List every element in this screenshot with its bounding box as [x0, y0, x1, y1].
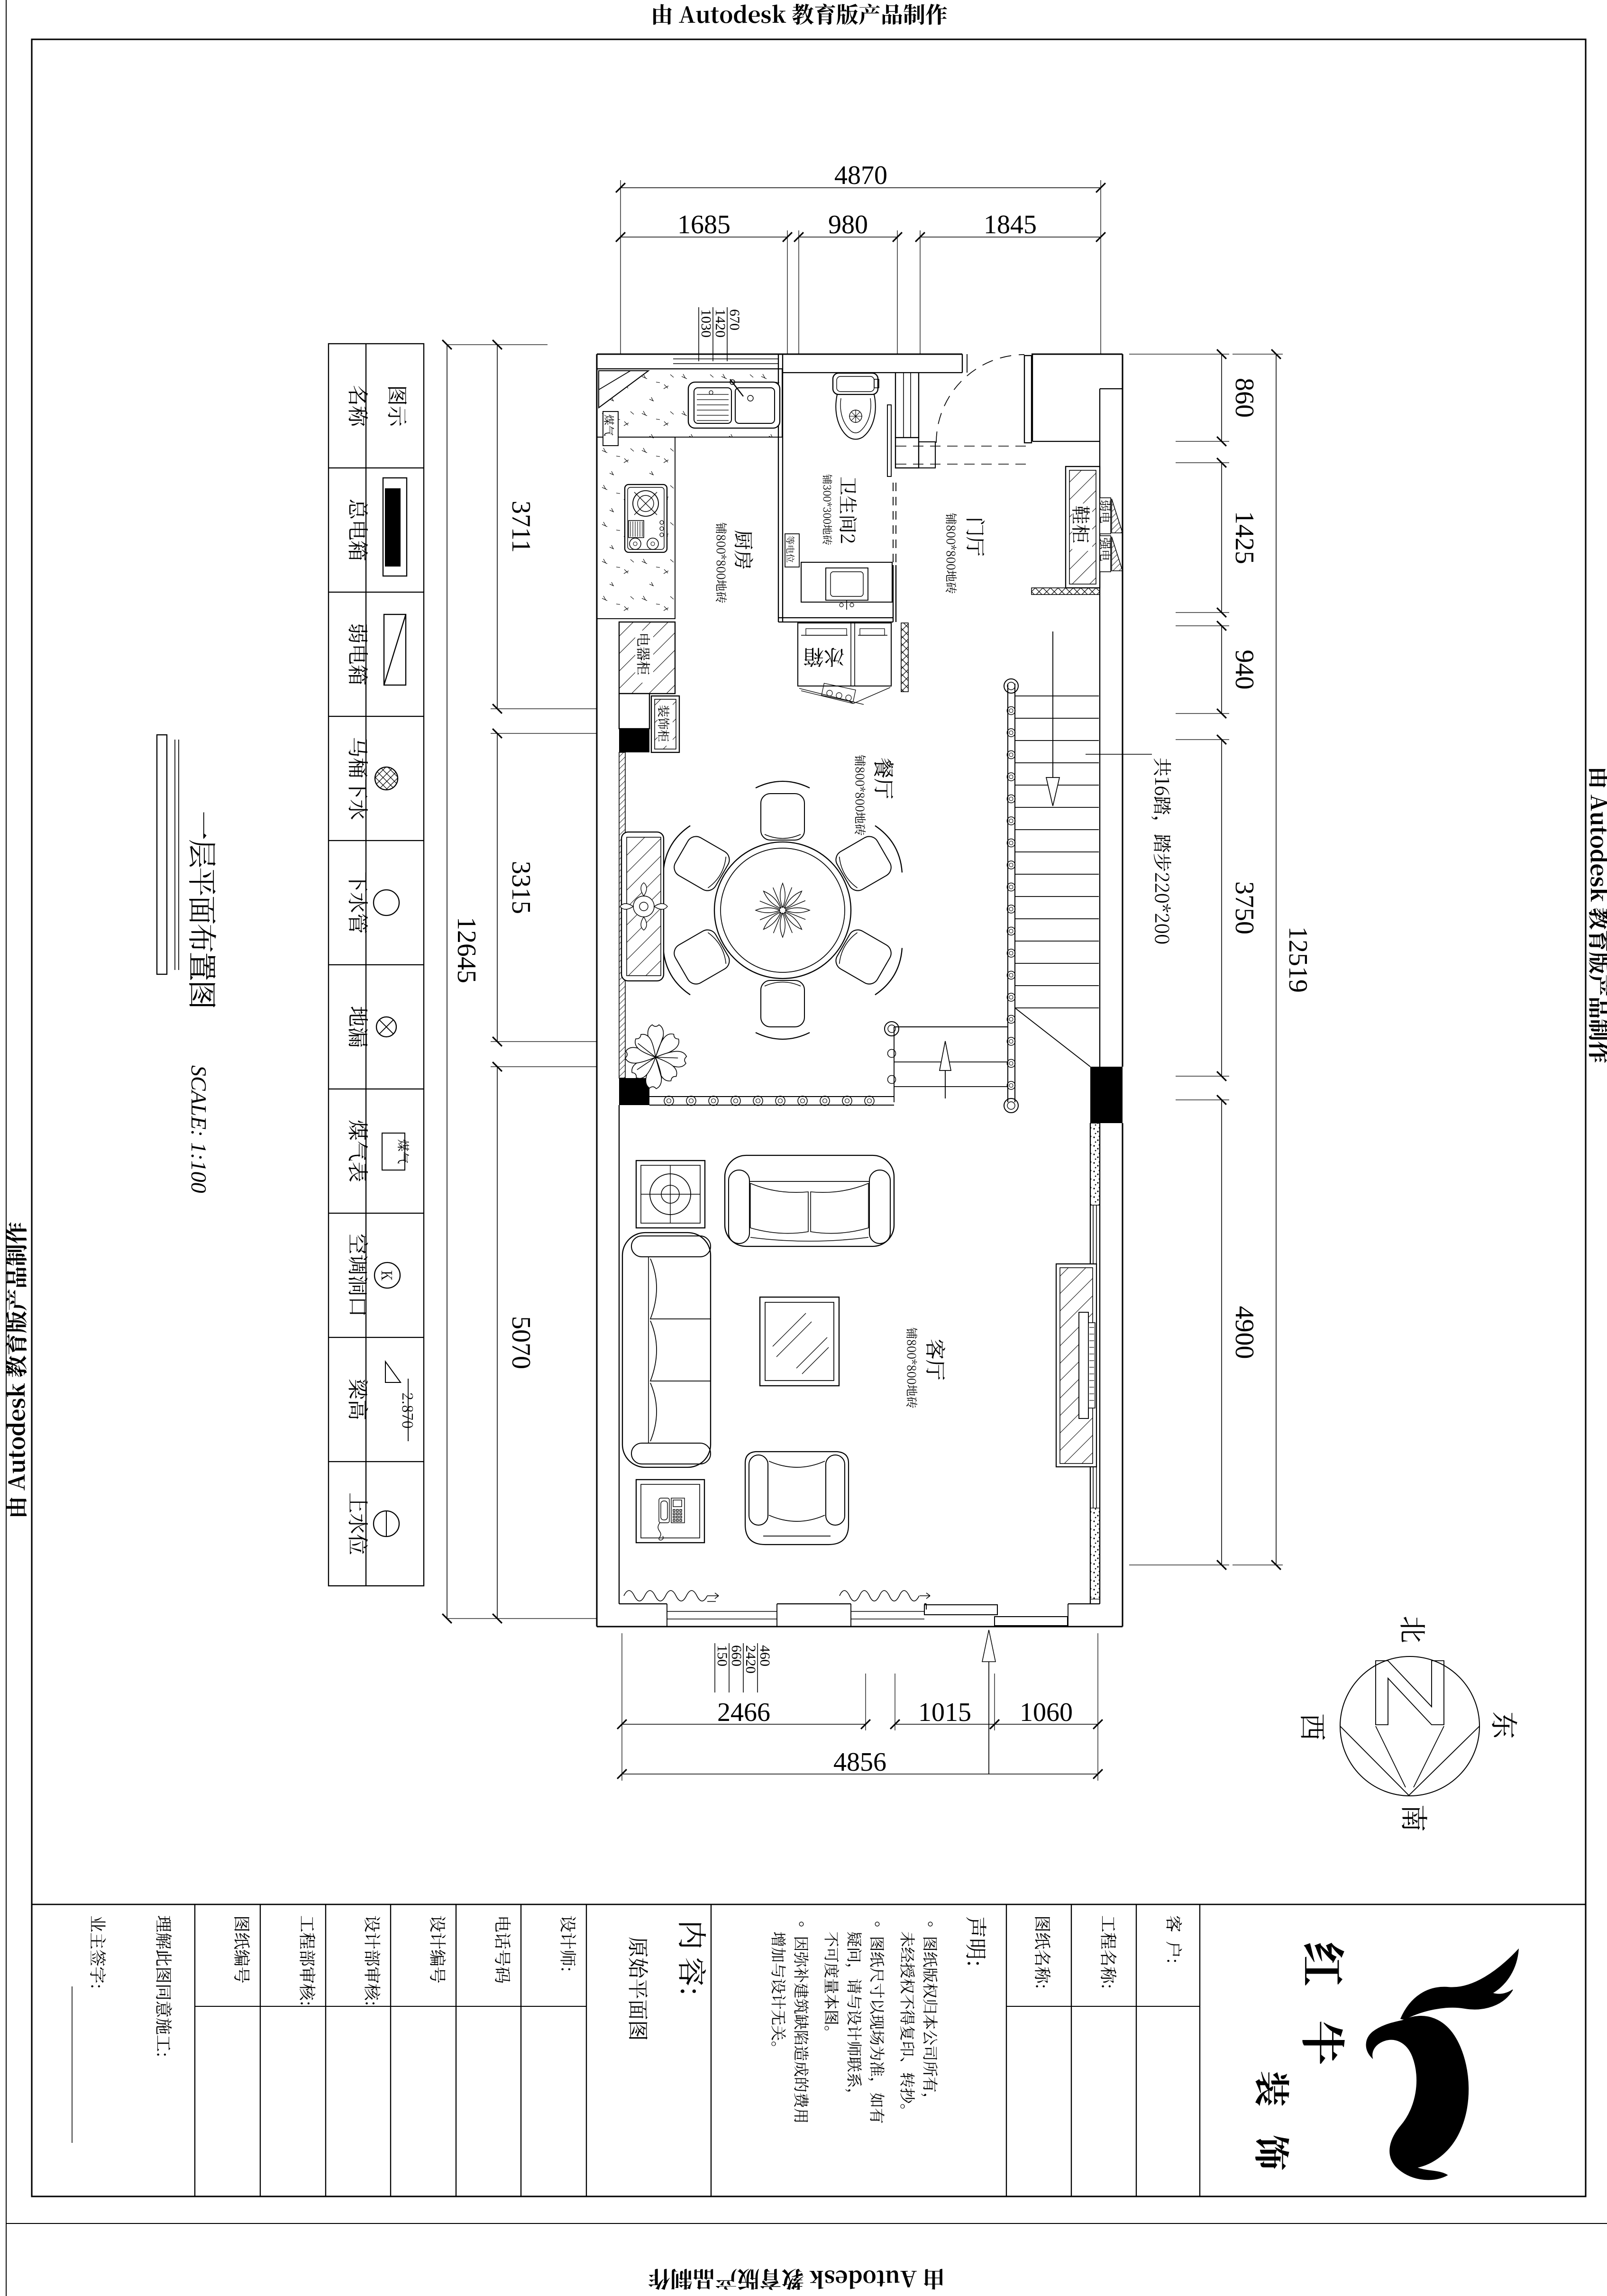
svg-text:460: 460	[757, 1645, 773, 1666]
svg-text:1420: 1420	[712, 309, 728, 338]
svg-text:4856: 4856	[833, 1747, 886, 1777]
svg-text:5070: 5070	[506, 1316, 536, 1369]
svg-text:660: 660	[729, 1645, 744, 1666]
svg-text:1425: 1425	[1230, 511, 1259, 564]
svg-text:670: 670	[727, 309, 742, 330]
svg-text:1015: 1015	[918, 1698, 971, 1727]
svg-text:2420: 2420	[743, 1645, 758, 1674]
svg-text:4900: 4900	[1230, 1306, 1259, 1359]
svg-text:1685: 1685	[677, 210, 730, 239]
svg-text:12645: 12645	[452, 917, 481, 983]
svg-text:1060: 1060	[1020, 1698, 1073, 1727]
svg-text:3315: 3315	[506, 861, 536, 914]
svg-text:3711: 3711	[506, 501, 536, 553]
svg-text:1030: 1030	[698, 309, 714, 338]
svg-text:12519: 12519	[1283, 926, 1313, 993]
svg-text:3750: 3750	[1230, 881, 1259, 934]
svg-text:1845: 1845	[984, 210, 1037, 239]
svg-text:2466: 2466	[717, 1698, 770, 1727]
svg-text:SCALE: 1:100: SCALE: 1:100	[187, 1065, 211, 1193]
svg-text:940: 940	[1230, 650, 1259, 690]
svg-text:150: 150	[714, 1645, 730, 1666]
svg-text:860: 860	[1230, 378, 1259, 418]
svg-text:4870: 4870	[834, 161, 887, 190]
svg-text:980: 980	[828, 210, 868, 239]
